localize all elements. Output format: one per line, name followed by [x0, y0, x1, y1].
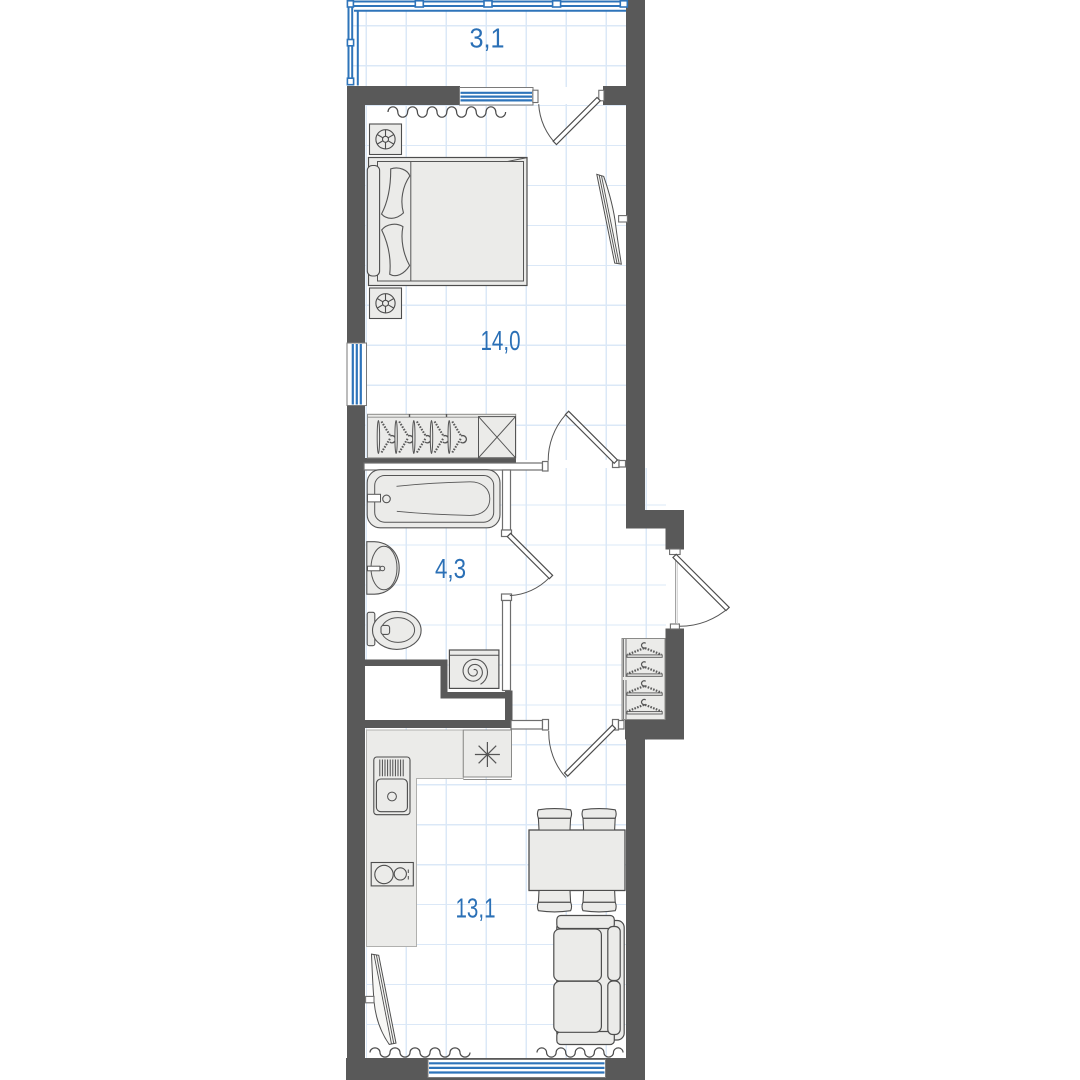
svg-text:13,1: 13,1: [456, 893, 496, 924]
svg-text:14,0: 14,0: [481, 325, 521, 356]
svg-text:3,1: 3,1: [470, 23, 505, 54]
svg-text:4,3: 4,3: [435, 553, 466, 584]
